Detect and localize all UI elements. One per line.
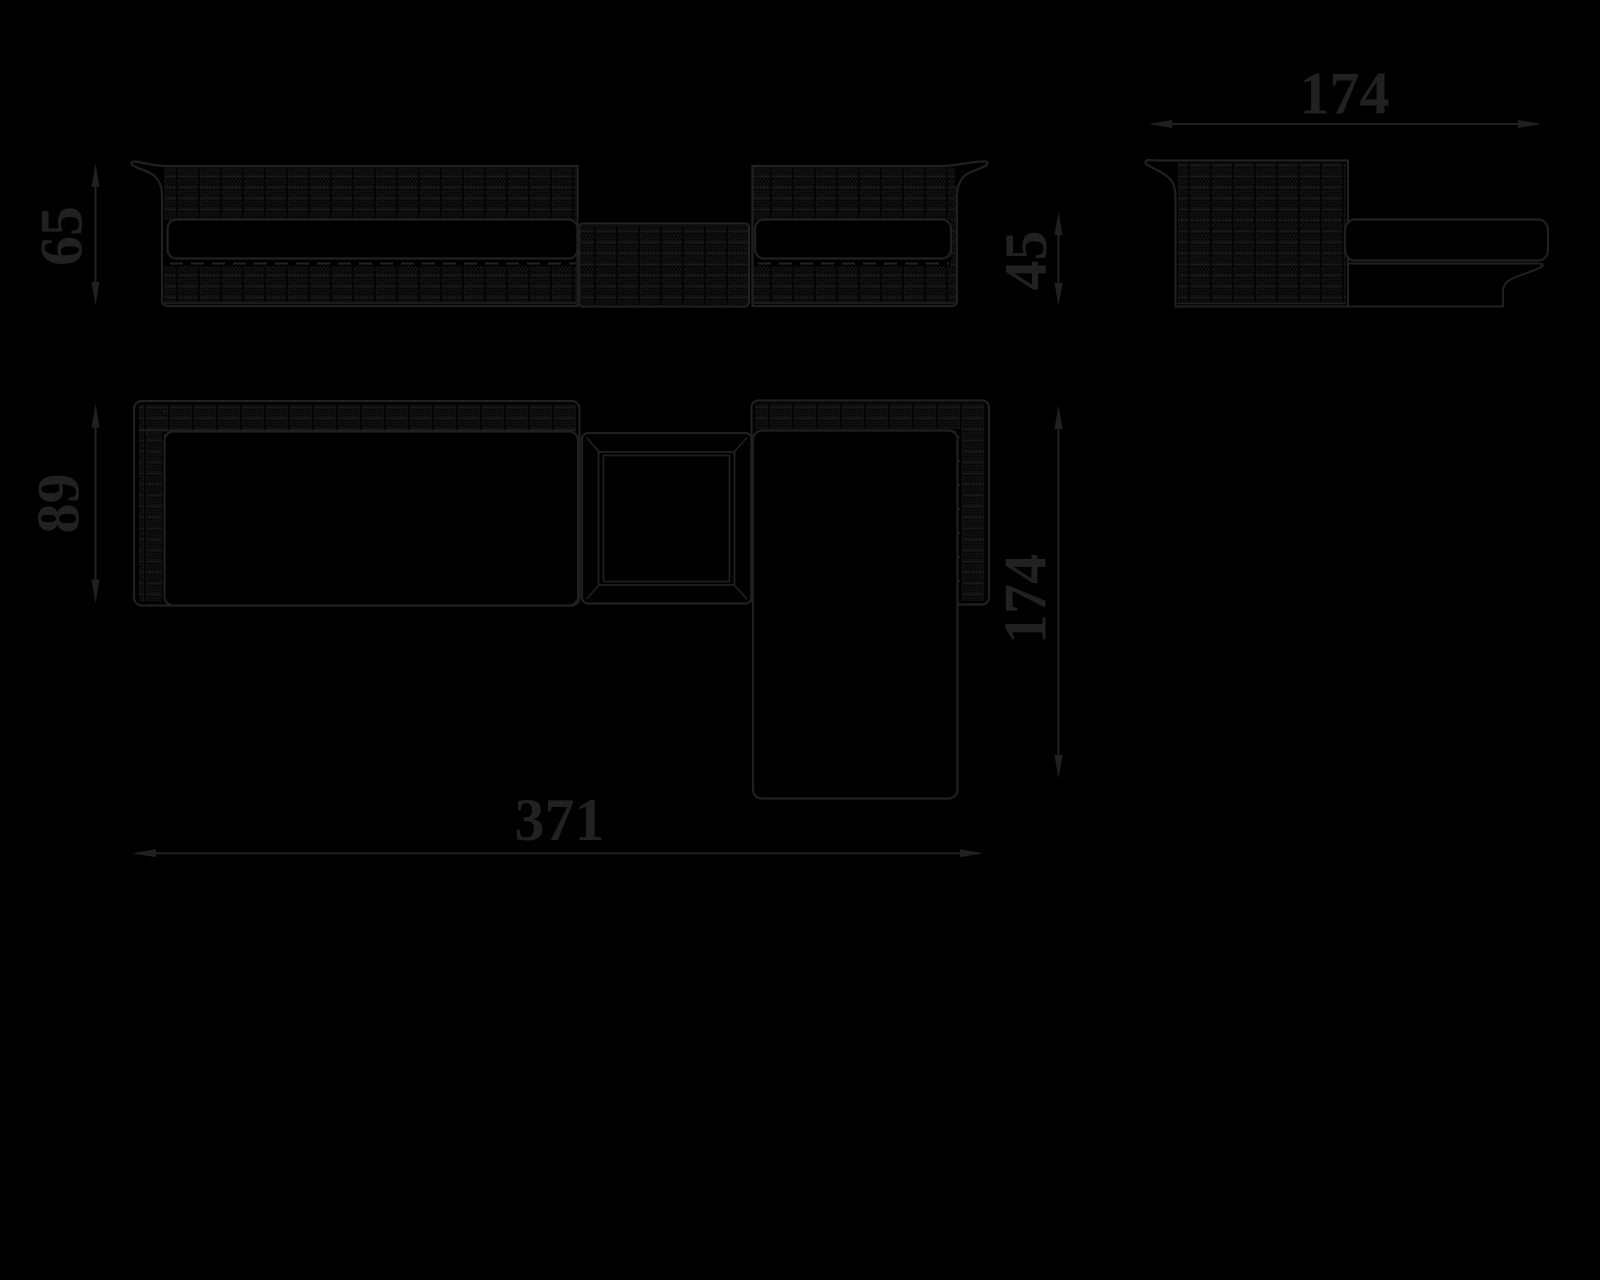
- svg-text:65: 65: [29, 206, 95, 266]
- svg-text:174: 174: [1300, 61, 1390, 127]
- svg-text:174: 174: [993, 554, 1059, 644]
- svg-text:89: 89: [26, 474, 92, 534]
- svg-text:45: 45: [993, 231, 1059, 291]
- svg-text:371: 371: [515, 787, 605, 853]
